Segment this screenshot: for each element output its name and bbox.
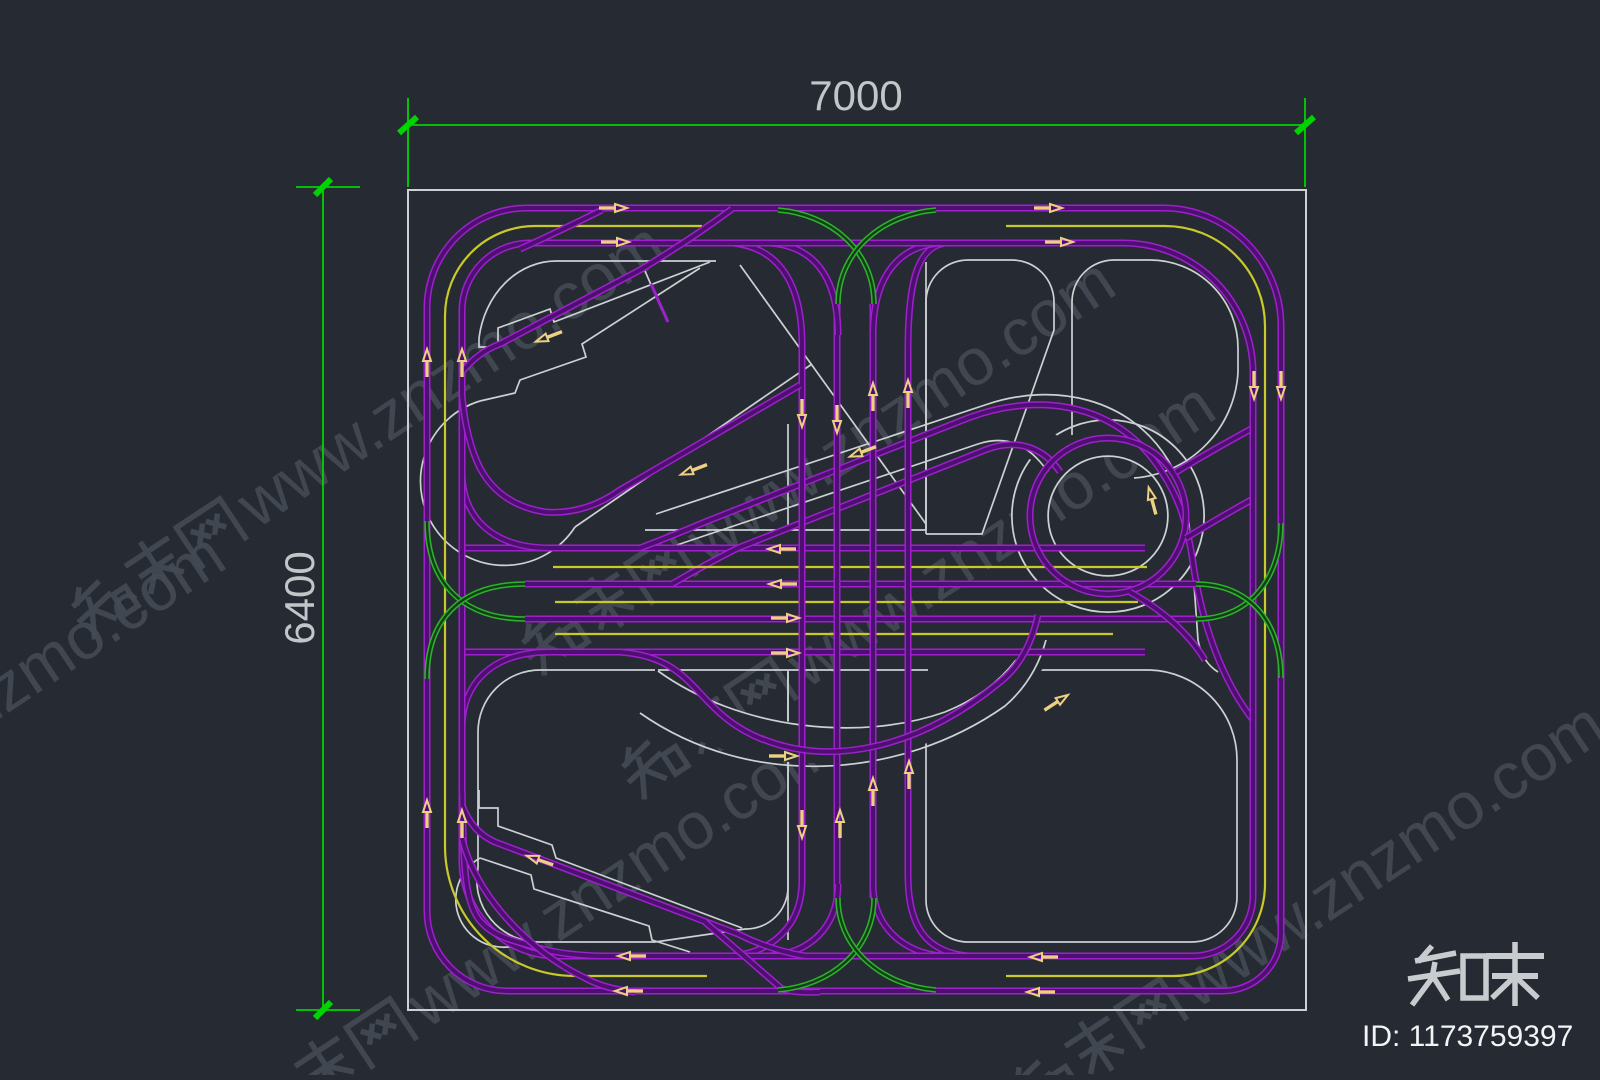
svg-text:7000: 7000 bbox=[809, 72, 902, 119]
svg-text:ID: 1173759397: ID: 1173759397 bbox=[1362, 1020, 1573, 1053]
svg-text:6400: 6400 bbox=[276, 551, 323, 644]
